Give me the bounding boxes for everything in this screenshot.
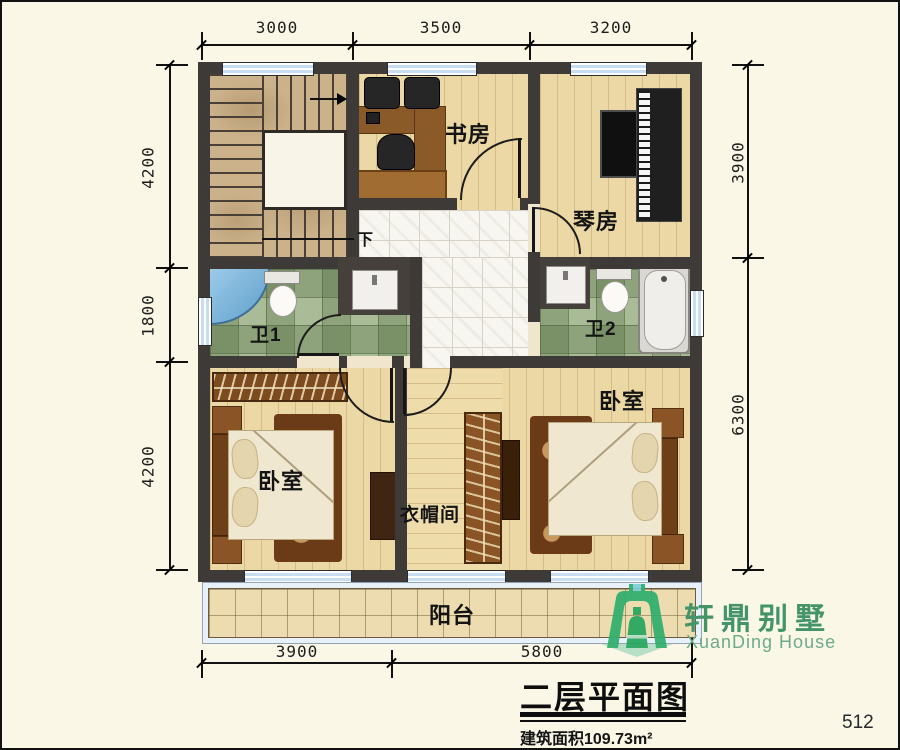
piano-keys-icon [639,93,650,217]
window-top-3 [570,62,647,76]
dim-label-top-1: 3000 [247,18,307,37]
window-top-1 [222,62,314,76]
label-bedroom-right: 卧室 [599,384,645,416]
wardrobe-left-bedroom [212,372,348,402]
bathroom2-sink-niche [540,257,590,309]
door-leaf-study [518,138,521,198]
dim-label-left-2: 1800 [139,286,158,346]
study-chair-icon [377,134,415,170]
label-cloakroom: 衣帽间 [400,500,460,527]
floor-plan-canvas: 3000 3500 3200 4200 1800 4200 3900 6300 … [0,0,900,750]
window-left-bath1 [198,297,212,346]
door-leaf-bathroom1 [297,353,339,356]
toilet-bowl [601,281,629,313]
wall-bathroom1-east [410,257,422,368]
headboard-right [660,438,678,535]
dim-label-top-3: 3200 [581,18,641,37]
toilet-tank [264,271,300,284]
bathtub-icon [638,264,690,354]
stair-run-bottom [262,210,347,257]
label-bathroom1: 卫1 [250,320,282,347]
label-piano-room: 琴房 [573,204,619,236]
bathroom1-sink-niche [338,257,410,315]
piano [636,88,682,222]
wardrobe-rail [214,387,346,389]
toilet-icon [264,271,300,319]
sink-icon [352,270,398,310]
dim-label-bottom-1: 3900 [267,642,327,661]
window-top-2 [387,62,477,76]
dim-label-right-2: 6300 [729,385,748,445]
dim-label-right-1: 3900 [729,133,748,193]
door-leaf-bedroom-left [390,368,393,421]
toilet-icon [596,267,632,315]
wardrobe-rail [483,414,485,562]
pillow-icon [230,486,259,528]
pillow-icon [230,438,260,480]
wall-bathroom2-west [528,269,540,322]
wall-lower-band-a [210,356,297,368]
logo: 轩鼎别墅 XuanDing House [598,580,898,664]
study-chair-icon [404,77,440,109]
stair-run-top [262,74,347,130]
hall-floor-upper [359,210,528,257]
pillow-icon [630,480,659,522]
logo-text-en: XuanDing House [686,632,836,653]
bathtub-basin [644,270,686,350]
dim-label-bottom-2: 5800 [512,642,572,661]
stair-void [262,130,347,210]
label-study: 书房 [445,117,491,149]
sink-faucet [372,275,377,285]
bathtub-drain [661,276,667,282]
stair-flight-left [210,74,264,257]
label-bathroom2: 卫2 [585,314,617,341]
dim-label-left-1: 4200 [139,138,158,198]
stair-direction-line [310,98,338,100]
title-underline-thin [520,720,686,722]
window-right-bath2 [690,290,704,337]
door-leaf-piano [532,207,535,252]
dim-ext-left-1 [156,64,188,66]
stair-arrow-icon [337,93,347,105]
cloakroom-panel [502,440,520,520]
dim-label-top-2: 3500 [411,18,471,37]
wall-lower-post-2 [392,356,404,368]
sink-icon [546,266,586,304]
nightstand-icon [652,534,684,564]
bed-right [548,422,662,536]
title-underline-thick [520,712,686,717]
label-bedroom-left: 卧室 [258,464,304,496]
nightstand-icon [212,536,242,564]
door-leaf-cloakroom [403,368,406,414]
pillow-icon [630,432,660,474]
study-laptop-icon [366,112,380,124]
stair-down-leader [262,238,354,240]
wall-lower-band-b [450,356,690,368]
duvet-fold-line [548,422,642,531]
page-number: 512 [842,712,874,734]
wall-piano-west-upper [528,74,540,204]
dim-label-left-3: 4200 [139,437,158,497]
hall-floor-lower [422,257,528,368]
wall-study-south [347,198,457,210]
toilet-bowl [269,285,297,317]
title-block: 二层平面图 建筑面积109.73m² [520,672,780,748]
dim-ext-left-2 [156,267,188,269]
logo-house-icon [598,582,676,660]
sink-faucet [563,271,568,280]
dim-line-top [202,44,692,46]
study-chair-icon [364,77,400,109]
dim-line-left [169,65,171,570]
cloakroom-wardrobe [464,412,502,564]
floor-plan: 下 [198,62,702,582]
label-balcony: 阳台 [429,598,475,630]
dim-ext-left-3 [156,361,188,363]
dim-ext-left-4 [156,569,188,571]
building-area-label: 建筑面积109.73m² [520,725,653,749]
stair-down-label: 下 [357,226,374,250]
tv-cabinet-left-bedroom [370,472,396,540]
